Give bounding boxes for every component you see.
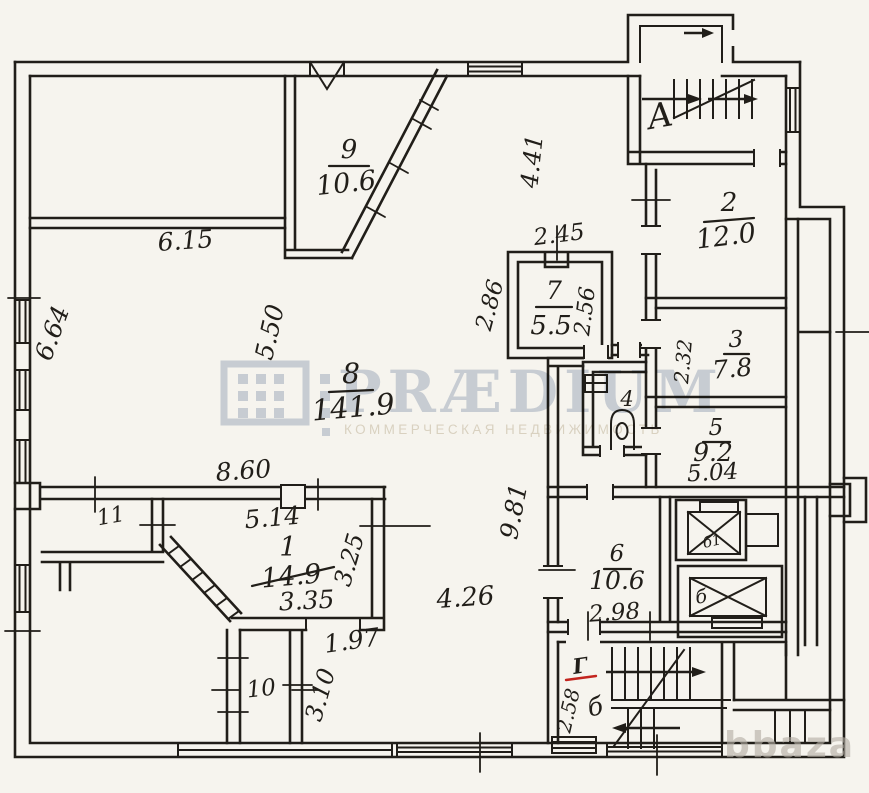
elevator-small-label: б1 xyxy=(701,530,723,551)
elevator-shafts xyxy=(676,500,782,637)
dim-2-45: 2.45 xyxy=(531,219,586,251)
dim-3-10: 3.10 xyxy=(299,665,341,724)
room-8-number: 8 xyxy=(342,357,360,390)
watermark-site: bbaza xyxy=(724,725,855,766)
room-6-number: 6 xyxy=(610,541,625,567)
room-3-number: 3 xyxy=(729,327,744,353)
room-9-number: 9 xyxy=(341,135,358,165)
room-6-area: 10.6 xyxy=(589,566,645,595)
room-4-number: 4 xyxy=(619,387,633,411)
dim-1-97: 1.97 xyxy=(322,622,381,658)
room-2-number: 2 xyxy=(720,188,738,218)
room-7-area: 5.5 xyxy=(530,311,571,341)
room-11-number: 11 xyxy=(95,502,127,531)
room-8-area: 141.9 xyxy=(310,386,396,427)
room-label-2: 2 12.0 xyxy=(694,188,757,256)
stair-arrow-icon xyxy=(692,667,706,677)
floorplan-scan: PRÆDIUM КОММЕРЧЕСКАЯ НЕДВИЖИМОСТЬ bbaza … xyxy=(0,0,869,793)
dim-2-58: 2.58 xyxy=(551,686,585,736)
dim-4-26: 4.26 xyxy=(435,581,496,615)
dim-3-25: 3.25 xyxy=(328,530,370,589)
dim-9-81: 9.81 xyxy=(494,481,533,541)
dim-8-60: 8.60 xyxy=(215,454,273,487)
floorplan-svg: PRÆDIUM КОММЕРЧЕСКАЯ НЕДВИЖИМОСТЬ bbaza … xyxy=(0,0,869,793)
dim-2-56: 2.56 xyxy=(570,285,601,338)
room-10-number: 10 xyxy=(245,675,277,704)
watermark-brand: PRÆDIUM xyxy=(338,358,724,426)
room-3-area: 7.8 xyxy=(711,352,753,384)
room-label-6: 6 10.6 xyxy=(589,541,645,595)
entrance-arrow-icon xyxy=(702,28,714,38)
room-9-area: 10.6 xyxy=(315,165,378,202)
hatched-diagonal-wall xyxy=(160,537,241,621)
dim-6-64: 6.64 xyxy=(29,302,75,364)
room-2-area: 12.0 xyxy=(694,218,757,256)
red-mark: Г xyxy=(566,652,596,680)
room-1-number: 1 xyxy=(279,532,296,563)
room-label-9: 9 10.6 xyxy=(315,135,378,202)
stair-a-letter: А xyxy=(642,94,676,138)
watermark-praedium: PRÆDIUM КОММЕРЧЕСКАЯ НЕДВИЖИМОСТЬ xyxy=(224,358,724,437)
dim-2-86: 2.86 xyxy=(471,277,510,334)
stair-arrow-icon xyxy=(612,723,626,733)
room-label-3: 3 7.8 xyxy=(711,327,753,385)
dim-5-14: 5.14 xyxy=(243,501,301,535)
stair-rear-letter: б xyxy=(585,691,607,723)
watermark-tagline: КОММЕРЧЕСКАЯ НЕДВИЖИМОСТЬ xyxy=(344,422,663,437)
dim-5-04: 5.04 xyxy=(686,459,739,488)
dim-6-15: 6.15 xyxy=(157,224,215,257)
room-label-7: 7 5.5 xyxy=(530,276,572,341)
dim-5-50: 5.50 xyxy=(249,302,290,363)
red-gamma-mark: Г xyxy=(570,652,590,679)
elevator-large-label: б xyxy=(694,585,709,608)
dim-3-35: 3.35 xyxy=(278,585,335,617)
dim-4-41: 4.41 xyxy=(515,133,549,190)
room-7-number: 7 xyxy=(546,276,562,305)
dim-2-98: 2.98 xyxy=(587,598,641,628)
dim-2-32: 2.32 xyxy=(669,338,697,385)
